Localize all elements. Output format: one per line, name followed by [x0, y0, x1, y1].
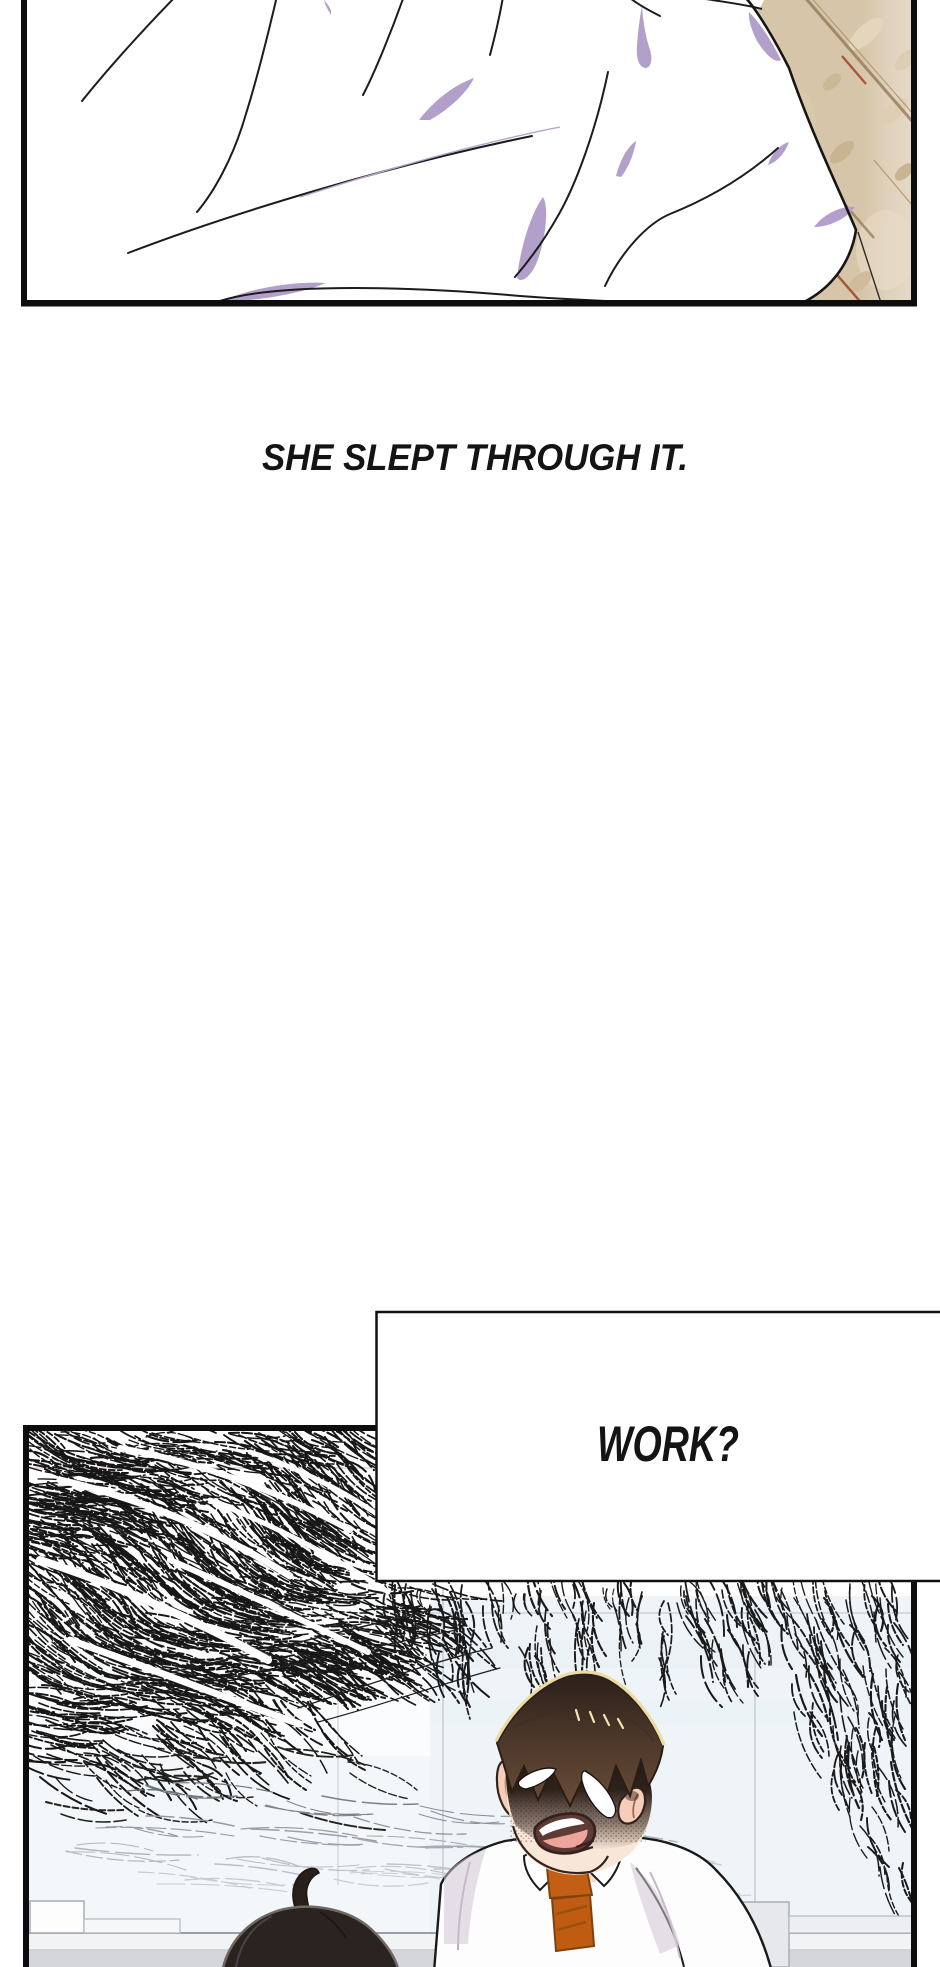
svg-text:SHE SLEPT THROUGH IT.: SHE SLEPT THROUGH IT. [262, 437, 688, 478]
svg-text:WORK?: WORK? [597, 1416, 739, 1472]
